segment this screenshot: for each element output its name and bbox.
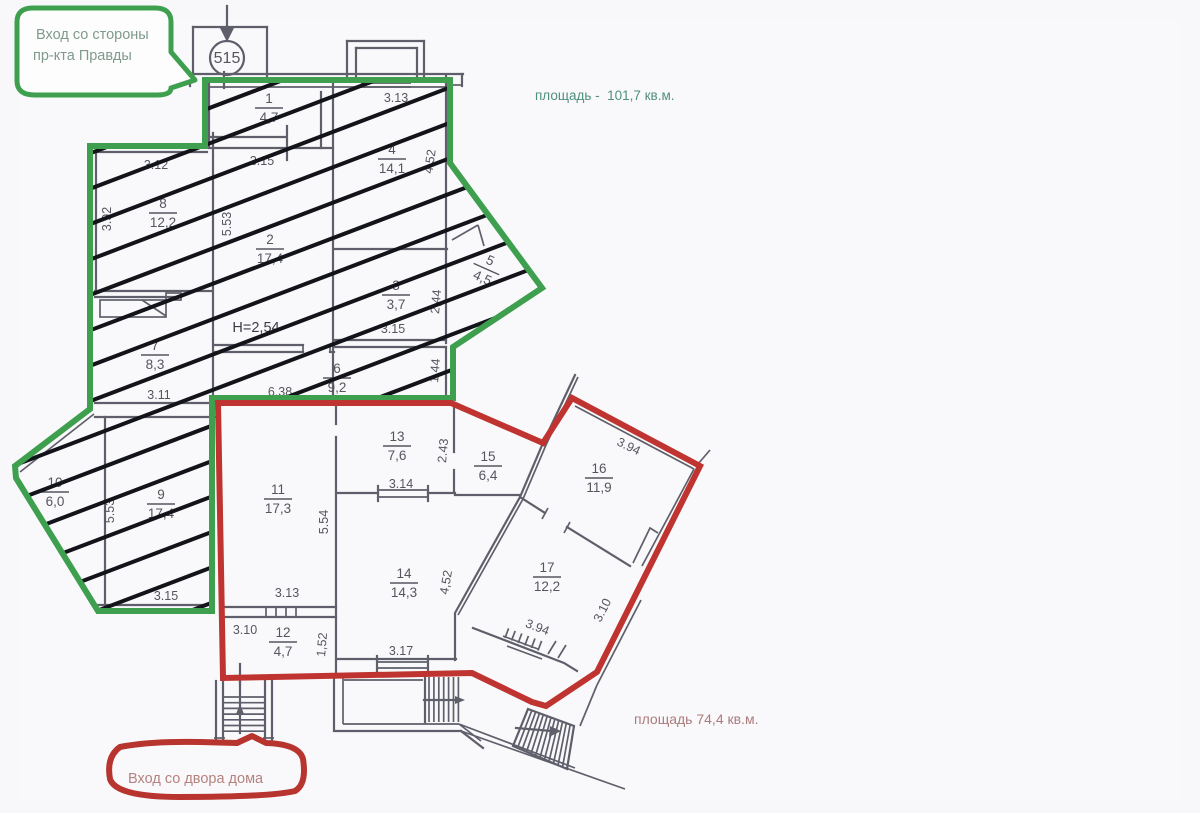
svg-text:3.13: 3.13: [275, 586, 299, 600]
svg-text:2.43: 2.43: [435, 438, 451, 464]
svg-text:площадь - 101,7 кв.м.: площадь - 101,7 кв.м.: [535, 88, 675, 103]
svg-text:3,7: 3,7: [387, 297, 406, 312]
svg-text:пр-кта Правды: пр-кта Правды: [33, 48, 132, 64]
svg-text:5.54: 5.54: [317, 510, 331, 534]
svg-text:13: 13: [389, 429, 404, 444]
svg-text:515: 515: [214, 50, 241, 67]
svg-text:3.14: 3.14: [389, 477, 413, 491]
svg-text:14,3: 14,3: [391, 585, 417, 600]
svg-text:1: 1: [265, 91, 273, 106]
svg-text:1,52: 1,52: [314, 632, 330, 658]
svg-text:15: 15: [480, 449, 495, 464]
svg-text:14,1: 14,1: [379, 161, 405, 176]
svg-text:3.10: 3.10: [233, 623, 257, 637]
svg-text:4,7: 4,7: [274, 644, 293, 659]
svg-text:11: 11: [271, 482, 285, 497]
svg-text:17,3: 17,3: [265, 501, 291, 516]
svg-text:6,4: 6,4: [479, 468, 498, 483]
svg-text:12,2: 12,2: [534, 579, 560, 594]
svg-text:Вход со стороны: Вход со стороны: [36, 27, 149, 43]
svg-text:3.15: 3.15: [154, 589, 178, 603]
svg-text:8,3: 8,3: [146, 357, 165, 372]
svg-text:11,9: 11,9: [586, 480, 611, 495]
svg-text:12: 12: [275, 625, 290, 640]
svg-text:3.17: 3.17: [389, 644, 413, 658]
svg-text:5.53: 5.53: [220, 212, 234, 236]
svg-text:2: 2: [266, 232, 274, 247]
svg-text:7,6: 7,6: [388, 448, 407, 463]
svg-text:Вход со двора дома: Вход со двора дома: [128, 771, 264, 787]
svg-text:16: 16: [591, 461, 606, 476]
svg-text:17: 17: [539, 560, 554, 575]
svg-text:3.11: 3.11: [147, 388, 170, 402]
svg-text:площадь 74,4 кв.м.: площадь 74,4 кв.м.: [634, 711, 758, 727]
svg-text:9: 9: [157, 487, 165, 502]
svg-text:6: 6: [333, 361, 341, 376]
svg-text:14: 14: [396, 566, 412, 581]
svg-text:6,0: 6,0: [46, 494, 65, 509]
